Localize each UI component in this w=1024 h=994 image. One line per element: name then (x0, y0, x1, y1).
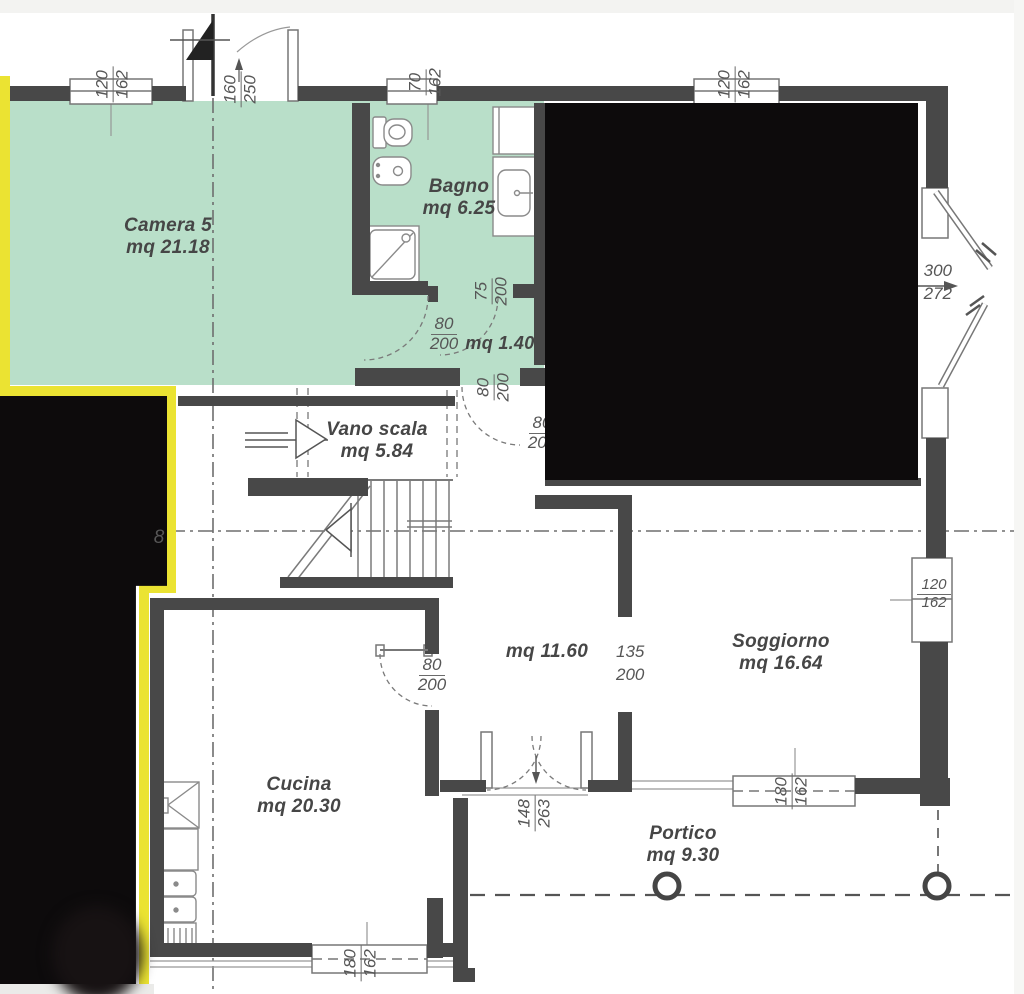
dim-door-camera: 80 200 (420, 315, 468, 354)
dim-door-cucina: 80 200 (408, 656, 456, 695)
dim-opening-soggiorno: 135 200 (616, 641, 664, 687)
room-label-soggiorno: Soggiorno mq 16.64 (711, 631, 851, 676)
dim-window-soggiorno-right: 120 162 (914, 577, 954, 611)
room-label-hall: mq 11.60 (492, 641, 602, 663)
redacted-region-top-right (545, 103, 918, 480)
dim-window-cucina-bottom: 180 162 (342, 939, 381, 987)
french-door-jamb (481, 732, 492, 788)
door-jamb (288, 30, 298, 101)
page-edge-top (0, 0, 1024, 13)
page-edge-right (1014, 0, 1024, 994)
dim-partial: 8 (148, 528, 170, 549)
bay-frame-lower (922, 388, 948, 438)
washer-icon (493, 107, 536, 154)
stair-direction-arrow-down (326, 509, 351, 551)
dim-window-top-left: 120 162 (94, 60, 133, 108)
dim-door-bagno: 75 200 (473, 267, 512, 315)
french-door-left-swing (487, 736, 541, 790)
french-door-arrow (532, 756, 540, 784)
room-label-cucina: Cucina mq 20.30 (229, 774, 369, 819)
french-door-jamb (581, 732, 592, 788)
french-door-right-swing (532, 736, 586, 790)
dim-french-door: 148 263 (516, 789, 555, 837)
room-label-camera5: Camera 5 mq 21.18 (93, 215, 243, 260)
portico-column (925, 874, 949, 898)
redaction-smudge (52, 906, 142, 994)
floor-plan: Camera 5 mq 21.18 Bagno mq 6.25 mq 1.40 … (0, 0, 1024, 994)
dim-window-soggiorno-bottom: 180 162 (773, 767, 812, 815)
shower-icon (366, 226, 419, 283)
toilet-icon (373, 117, 412, 148)
dim-window-bagno: 70 162 (407, 58, 446, 106)
portico-column (655, 874, 679, 898)
dim-door-camera-top: 160 250 (222, 65, 261, 113)
dim-window-top-right: 120 162 (716, 60, 755, 108)
room-label-bagno: Bagno mq 6.25 (399, 176, 519, 221)
room-label-vano-scala: Vano scala mq 5.84 (307, 419, 447, 464)
room-label-portico: Portico mq 9.30 (613, 823, 753, 868)
dim-door-hall: 80 200 (475, 363, 514, 411)
